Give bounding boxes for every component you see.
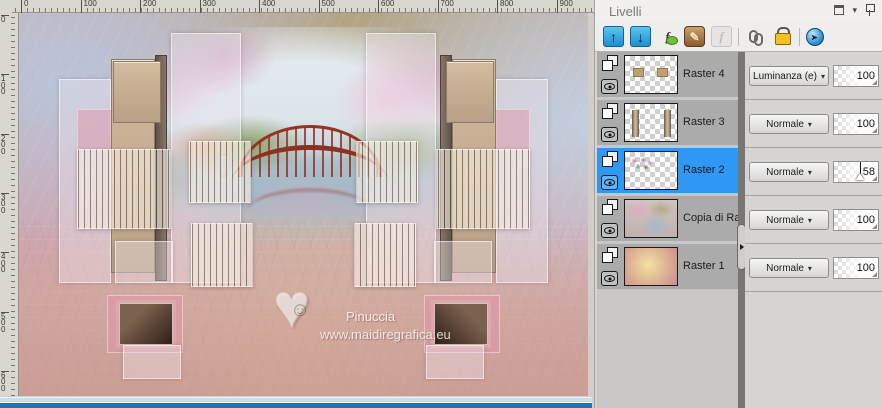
layer-row-raster1[interactable]: Raster 1 — [597, 244, 738, 289]
new-adjustment-layer-button[interactable]: f — [657, 26, 678, 47]
pin-icon[interactable] — [865, 4, 874, 16]
visibility-toggle-icon[interactable] — [601, 175, 618, 190]
image-canvas[interactable]: ♥ ☺ Pinuccia www.maidiregrafica.eu — [19, 13, 588, 396]
ruler-v-label: 500 — [1, 312, 9, 334]
layer-props-raster4: Luminanza (e)▾ 100 — [745, 52, 882, 100]
opacity-field[interactable]: 100 — [833, 257, 879, 279]
chevron-down-icon: ▾ — [808, 168, 812, 177]
spinner-corner-icon — [872, 224, 877, 229]
ruler-h-label: 400 — [259, 0, 275, 13]
layer-name[interactable]: Raster 2 — [683, 164, 725, 176]
layer-properties-column: Luminanza (e)▾ 100 Normale▾ 100 Normale▾… — [745, 52, 882, 408]
link-layers-button[interactable] — [745, 26, 766, 47]
vertical-ruler: 0100200300400500600 — [0, 13, 19, 396]
collage-shape — [434, 241, 492, 283]
layer-row-raster3[interactable]: Raster 3 — [597, 100, 738, 145]
restore-icon[interactable] — [834, 5, 844, 15]
opacity-field[interactable]: 100 — [833, 209, 879, 231]
layer-props-raster1: Normale▾ 100 — [745, 244, 882, 292]
toolbar-separator — [738, 28, 739, 46]
ruler-v-label: 400 — [1, 252, 9, 274]
lock-layer-button[interactable] — [772, 26, 793, 47]
spinner-corner-icon — [872, 128, 877, 133]
layer-props-raster2: Normale▾ 58 — [745, 148, 882, 196]
app-window: 0100200300400500600700800900 01002003004… — [0, 0, 882, 408]
collage-shape — [115, 241, 173, 283]
layer-props-copia-raster2: Normale▾ 100 — [745, 196, 882, 244]
collage-shape — [191, 223, 253, 287]
collage-shape — [494, 109, 530, 151]
visibility-toggle-icon[interactable] — [601, 223, 618, 238]
move-layer-down-button[interactable]: ↓ — [630, 26, 651, 47]
panel-title: Livelli — [609, 4, 642, 19]
opacity-field[interactable]: 58 — [833, 161, 879, 183]
watermark-url: www.maidiregrafica.eu — [320, 327, 451, 342]
layers-panel: Livelli ▾ ↑ ↓ f ✎ f Raster 4 — [594, 0, 882, 408]
collage-shape — [119, 303, 173, 345]
layer-type-icon — [602, 199, 618, 215]
smiley-icon: ☺ — [290, 299, 310, 322]
update-view-button[interactable] — [806, 28, 824, 46]
ruler-v-label: 100 — [1, 74, 9, 96]
layer-type-icon — [602, 247, 618, 263]
collage-shape — [189, 141, 251, 203]
layer-thumbnail[interactable] — [624, 199, 678, 238]
opacity-field[interactable]: 100 — [833, 65, 879, 87]
layer-props-raster3: Normale▾ 100 — [745, 100, 882, 148]
layer-type-icon — [602, 103, 618, 119]
ruler-h-label: 800 — [497, 0, 513, 13]
collage-left — [19, 13, 303, 396]
disabled-tool-button: f — [711, 26, 732, 47]
blend-mode-select[interactable]: Normale▾ — [749, 258, 829, 278]
collage-shape — [356, 141, 418, 203]
caret-down-icon[interactable]: ▾ — [852, 5, 857, 15]
collage-shape — [123, 345, 181, 379]
blend-mode-select[interactable]: Luminanza (e)▾ — [749, 66, 829, 86]
layer-row-raster4[interactable]: Raster 4 — [597, 52, 738, 97]
ruler-v-label: 600 — [1, 371, 9, 393]
blend-mode-select[interactable]: Normale▾ — [749, 114, 829, 134]
ruler-v-label: 0 — [1, 15, 9, 24]
collage-shape — [77, 149, 171, 229]
chevron-down-icon: ▾ — [808, 264, 812, 273]
layer-thumbnail[interactable] — [624, 103, 678, 142]
ruler-h-label: 0 — [21, 0, 28, 13]
ruler-h-label: 300 — [200, 0, 216, 13]
layer-thumbnail[interactable] — [624, 55, 678, 94]
layer-name[interactable]: Raster 3 — [683, 116, 725, 128]
chevron-down-icon: ▾ — [808, 216, 812, 225]
document-workarea: 0100200300400500600700800900 01002003004… — [0, 0, 594, 408]
spinner-corner-icon — [872, 272, 877, 277]
ruler-h-label: 200 — [140, 0, 156, 13]
collage-shape — [77, 109, 113, 151]
blend-mode-select[interactable]: Normale▾ — [749, 162, 829, 182]
move-layer-up-button[interactable]: ↑ — [603, 26, 624, 47]
ruler-v-label: 300 — [1, 193, 9, 215]
layers-panel-header: Livelli ▾ — [595, 0, 882, 22]
opacity-field[interactable]: 100 — [833, 113, 879, 135]
layer-list: Raster 4 Raster 3 Raster 2 Copia di Rast… — [597, 52, 738, 408]
collage-shape — [113, 61, 161, 123]
visibility-toggle-icon[interactable] — [601, 79, 618, 94]
panel-splitter[interactable] — [738, 52, 745, 408]
layers-toolbar: ↑ ↓ f ✎ f — [595, 22, 882, 52]
collage-shape — [436, 149, 530, 229]
layer-name[interactable]: Raster 1 — [683, 260, 725, 272]
layer-name[interactable]: Raster 4 — [683, 68, 725, 80]
collage-shape — [446, 61, 494, 123]
chevron-down-icon: ▾ — [808, 120, 812, 129]
spinner-corner-icon — [872, 176, 877, 181]
collage-shape — [354, 223, 416, 287]
ruler-h-label: 700 — [438, 0, 454, 13]
chevron-down-icon: ▾ — [821, 72, 825, 81]
layer-row-copia-raster2[interactable]: Copia di Raster 2 — [597, 196, 738, 241]
visibility-toggle-icon[interactable] — [601, 271, 618, 286]
layer-type-icon — [602, 55, 618, 71]
edit-layer-button[interactable]: ✎ — [684, 26, 705, 47]
ruler-h-label: 500 — [319, 0, 335, 13]
layer-type-icon — [602, 151, 618, 167]
spinner-corner-icon — [872, 80, 877, 85]
ruler-h-label: 600 — [378, 0, 394, 13]
toolbar-separator — [799, 28, 800, 46]
visibility-toggle-icon[interactable] — [601, 127, 618, 142]
layer-thumbnail[interactable] — [624, 247, 678, 286]
watermark: ♥ ☺ Pinuccia www.maidiregrafica.eu — [274, 291, 504, 375]
opacity-slider-handle[interactable] — [856, 173, 864, 180]
ruler-h-label: 100 — [81, 0, 97, 13]
taskbar-edge — [0, 403, 592, 408]
watermark-author: Pinuccia — [346, 309, 395, 324]
layer-thumbnail[interactable] — [624, 151, 678, 190]
blend-mode-select[interactable]: Normale▾ — [749, 210, 829, 230]
layer-row-raster2[interactable]: Raster 2 — [597, 148, 738, 193]
ruler-v-label: 200 — [1, 134, 9, 156]
ruler-h-label: 900 — [557, 0, 573, 13]
horizontal-ruler: 0100200300400500600700800900 — [12, 0, 594, 13]
